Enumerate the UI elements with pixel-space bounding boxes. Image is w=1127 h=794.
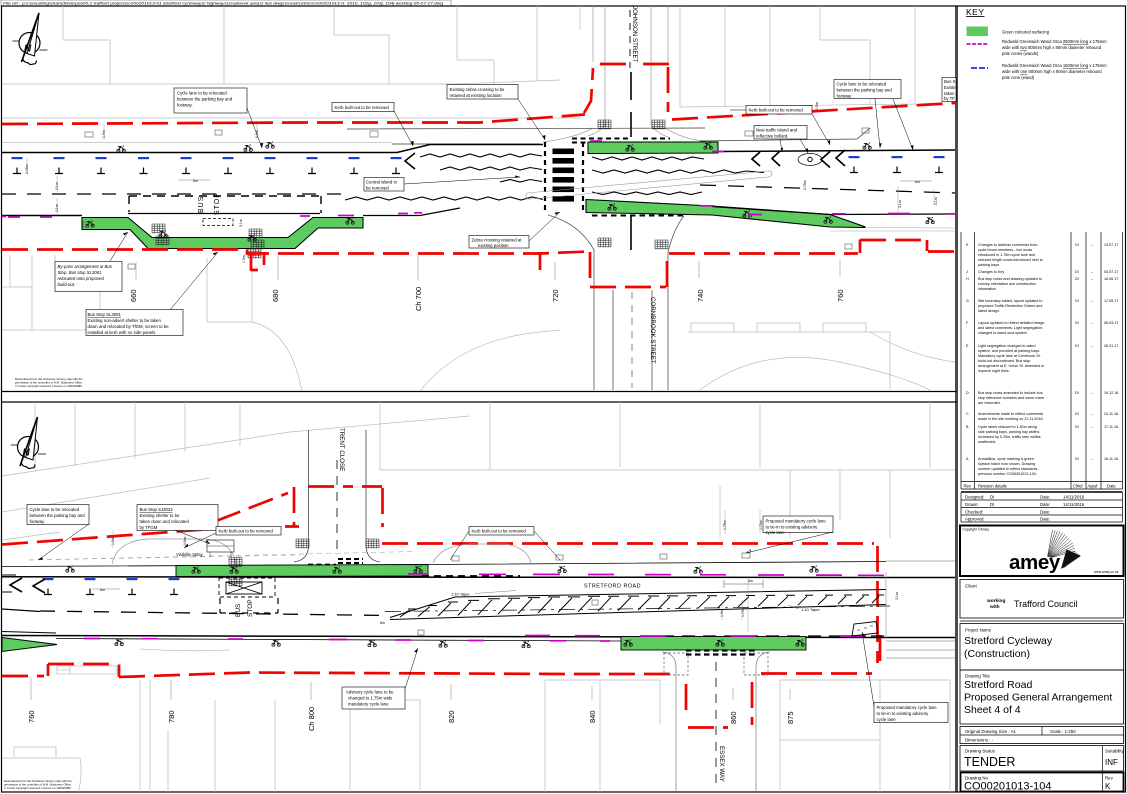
- svg-text:DI: DI: [1075, 457, 1079, 461]
- svg-text:16.11.16: 16.11.16: [1104, 457, 1118, 461]
- svg-text:DI: DI: [1075, 412, 1079, 416]
- svg-text:Stretford Road: Stretford Road: [964, 679, 1032, 691]
- svg-text:surface hatch now shown. Drawi: surface hatch now shown. Drawing: [978, 462, 1035, 466]
- svg-text:previous number CO00201013-104: previous number CO00201013-104.: [978, 472, 1037, 476]
- svg-text:wide with one 800mm high x 80m: wide with one 800mm high x 80mm diameter…: [1002, 69, 1102, 74]
- svg-text:Chkd: Chkd: [1073, 484, 1083, 489]
- svg-text:Proposed General Arrangement: Proposed General Arrangement: [964, 692, 1112, 704]
- svg-text:Approved:: Approved:: [965, 517, 985, 522]
- svg-text:DI: DI: [1075, 243, 1079, 247]
- svg-text:Ch 800: Ch 800: [307, 707, 316, 731]
- svg-text:Bus Stop SL3051: Bus Stop SL3051: [88, 312, 122, 317]
- svg-text:information: information: [978, 287, 996, 291]
- svg-text:unaffected.: unaffected.: [978, 440, 996, 444]
- svg-text:Existing zebra crossing to be: Existing zebra crossing to be: [450, 87, 506, 92]
- svg-text:3.1m: 3.1m: [934, 197, 938, 205]
- svg-text:Date:: Date:: [1040, 517, 1050, 522]
- svg-text:are reworded.: are reworded.: [978, 401, 1001, 405]
- svg-text:Checked:: Checked:: [965, 510, 983, 515]
- svg-text:Scale : 1:250: Scale : 1:250: [1050, 729, 1076, 734]
- svg-text:DI: DI: [1075, 391, 1079, 395]
- svg-text:STRETFORD ROAD: STRETFORD ROAD: [584, 584, 641, 590]
- svg-text:Bus stop notes and drawing upd: Bus stop notes and drawing updated to: [978, 277, 1042, 281]
- svg-text:14/11/2016: 14/11/2016: [1063, 502, 1085, 507]
- svg-text:INF: INF: [1105, 758, 1118, 767]
- svg-text:Redweld Greenwich Wand Orca 25: Redweld Greenwich Wand Orca 2500mm long …: [1002, 39, 1107, 44]
- svg-text:to tie-in to existing advisory: to tie-in to existing advisory: [766, 525, 819, 530]
- svg-text:860: 860: [729, 711, 738, 724]
- svg-text:retained at existing location: retained at existing location: [450, 93, 503, 98]
- svg-text:820: 820: [447, 710, 456, 723]
- svg-text:Sheet 4 of 4: Sheet 4 of 4: [964, 704, 1021, 716]
- svg-text:16.06.17: 16.06.17: [1104, 277, 1118, 281]
- svg-text:DI: DI: [1075, 277, 1079, 281]
- svg-text:3.1m: 3.1m: [239, 219, 243, 227]
- svg-text:Cycle lane to be relocated: Cycle lane to be relocated: [837, 82, 887, 87]
- svg-text:down and relocated by TfGM, sc: down and relocated by TfGM, screen to be: [88, 324, 170, 329]
- svg-text:19.12.16: 19.12.16: [1104, 391, 1118, 395]
- svg-text:with: with: [989, 604, 1000, 610]
- svg-text:17.05.17: 17.05.17: [1104, 299, 1118, 303]
- svg-text:By-pass arrangement at Bus: By-pass arrangement at Bus: [58, 264, 113, 269]
- svg-text:convey orientation and constru: convey orientation and construction: [978, 282, 1036, 286]
- svg-text:Kerb built-out to be removed: Kerb built-out to be removed: [219, 529, 274, 534]
- svg-text:Rev: Rev: [964, 484, 972, 489]
- svg-text:720: 720: [551, 289, 560, 302]
- svg-text:C: C: [966, 412, 969, 416]
- svg-text:6m: 6m: [380, 621, 385, 625]
- svg-text:Original Drawing Size : A1: Original Drawing Size : A1: [965, 729, 1017, 734]
- svg-text:13.07.17: 13.07.17: [1104, 243, 1118, 247]
- svg-text:Dimensions : -: Dimensions : -: [965, 738, 994, 743]
- svg-text:Amendments made to reflect com: Amendments made to reflect comments: [978, 412, 1043, 416]
- svg-text:parking bays: parking bays: [978, 263, 999, 267]
- svg-text:Stop. Bus stop SL3061: Stop. Bus stop SL3061: [58, 270, 103, 275]
- svg-text:Drawing Status: Drawing Status: [965, 749, 996, 754]
- svg-text:be removed: be removed: [366, 186, 389, 191]
- svg-text:Date:: Date:: [1040, 502, 1050, 507]
- svg-text:www.amey.co.uk: www.amey.co.uk: [1094, 570, 1119, 574]
- svg-text:number updated to reflect stan: number updated to reflect standards -: [978, 467, 1040, 471]
- svg-text:pole cone (wand): pole cone (wand): [1002, 75, 1035, 80]
- svg-text:system, and provided at parkin: system, and provided at parking bays.: [978, 349, 1040, 353]
- svg-text:Existin: Existin: [944, 85, 957, 90]
- svg-text:to tie-in to existing advisory: to tie-in to existing advisory: [877, 711, 930, 716]
- svg-text:660: 660: [129, 289, 138, 302]
- svg-text:between the parking bay and: between the parking bay and: [837, 88, 893, 93]
- svg-text:improve sight lines.: improve sight lines.: [978, 369, 1010, 373]
- svg-text:pole cones (wands): pole cones (wands): [1002, 51, 1039, 56]
- svg-text:between the parking bay and: between the parking bay and: [30, 513, 86, 518]
- svg-text:installed at kerb with no side: installed at kerb with no side panels: [88, 330, 156, 335]
- svg-text:1.75m: 1.75m: [741, 607, 745, 617]
- svg-text:Kerb built-out to be removed: Kerb built-out to be removed: [472, 529, 527, 534]
- svg-text:760: 760: [27, 710, 36, 723]
- svg-text:Light segregation changed to w: Light segregation changed to wand: [978, 344, 1035, 348]
- svg-text:Advisory cycle lane to be: Advisory cycle lane to be: [346, 690, 394, 695]
- svg-text:Zebra crossing retained at: Zebra crossing retained at: [472, 238, 523, 243]
- svg-text:side parking bays, parking bay: side parking bays, parking bay widths: [978, 430, 1039, 434]
- svg-text:KEY: KEY: [966, 7, 985, 17]
- svg-text:Date:: Date:: [1040, 510, 1050, 515]
- svg-text:STOP: STOP: [214, 192, 221, 215]
- svg-text:Kerb built-out to be removed: Kerb built-out to be removed: [749, 108, 804, 113]
- svg-text:1.5m: 1.5m: [815, 102, 819, 110]
- svg-text:BUS: BUS: [235, 603, 242, 617]
- svg-text:introduced in 1.75m cycle lane: introduced in 1.75m cycle lane and: [978, 253, 1035, 257]
- svg-text:latest design.: latest design.: [978, 309, 1000, 313]
- svg-text:6m: 6m: [915, 180, 920, 184]
- svg-text:Suitability: Suitability: [1105, 749, 1125, 754]
- svg-text:6m: 6m: [193, 179, 198, 183]
- svg-text:STOP: STOP: [247, 599, 254, 617]
- svg-text:Bus Stop SJ3032: Bus Stop SJ3032: [140, 507, 174, 512]
- svg-text:Kerb built-out to be removed: Kerb built-out to be removed: [335, 105, 390, 110]
- svg-text:mandatory cycle lane: mandatory cycle lane: [348, 702, 389, 707]
- svg-text:footway: footway: [837, 94, 853, 99]
- svg-text:cycle lane: cycle lane: [877, 717, 897, 722]
- svg-text:Green coloured surfacing: Green coloured surfacing: [1002, 30, 1050, 35]
- svg-text:TRENT CLOSE: TRENT CLOSE: [338, 428, 345, 471]
- svg-text:740: 740: [696, 289, 705, 302]
- svg-text:© Crown copyright reserved. Li: © Crown copyright reserved. Licence no 1…: [15, 384, 82, 388]
- svg-text:1.75m: 1.75m: [759, 520, 763, 530]
- svg-text:Proposed mandatory cycle lane: Proposed mandatory cycle lane: [766, 519, 827, 524]
- svg-text:760: 760: [836, 289, 845, 302]
- svg-text:Date:: Date:: [1040, 495, 1050, 500]
- svg-text:Bus S: Bus S: [944, 79, 956, 84]
- svg-text:03.07.17: 03.07.17: [1104, 270, 1118, 274]
- svg-text:K: K: [1105, 782, 1111, 791]
- svg-text:reflective bollard.: reflective bollard.: [756, 134, 788, 139]
- svg-text:Client: Client: [965, 584, 977, 589]
- svg-text:Mandatory cycle lane at Cornbr: Mandatory cycle lane at Cornbrook St.: [978, 354, 1041, 358]
- svg-text:680: 680: [271, 289, 280, 302]
- svg-text:and latest comments. Light seg: and latest comments. Light segregation: [978, 326, 1042, 330]
- svg-text:(Construction): (Construction): [964, 648, 1030, 660]
- svg-text:Drawing Title: Drawing Title: [965, 674, 990, 679]
- svg-text:Rev: Rev: [1105, 776, 1114, 781]
- svg-text:J: J: [966, 270, 968, 274]
- svg-text:cycle lane: cycle lane: [766, 530, 786, 535]
- svg-text:Drawn:: Drawn:: [965, 502, 979, 507]
- svg-text:H: H: [966, 277, 969, 281]
- svg-text:DI: DI: [990, 495, 994, 500]
- svg-text:1:10 Taper: 1:10 Taper: [801, 607, 820, 612]
- svg-text:New traffic island and: New traffic island and: [756, 128, 798, 133]
- svg-text:3.1m: 3.1m: [898, 200, 902, 208]
- svg-text:2.05m: 2.05m: [803, 180, 807, 190]
- svg-text:1:10 Taper: 1:10 Taper: [451, 592, 470, 597]
- svg-text:Ch 700: Ch 700: [414, 287, 423, 311]
- svg-text:wide with two 800mm high x 80m: wide with two 800mm high x 80mm diameter…: [1002, 45, 1102, 50]
- svg-text:Copyright ©Amey: Copyright ©Amey: [963, 528, 990, 532]
- svg-text:DI: DI: [1075, 425, 1079, 429]
- svg-text:ESSEX WAY: ESSEX WAY: [718, 746, 725, 782]
- svg-text:JOHNSON STREET: JOHNSON STREET: [631, 6, 638, 63]
- svg-text:Changes to address comments fr: Changes to address comments from: [978, 243, 1037, 247]
- svg-text:Changes to Key: Changes to Key: [978, 270, 1004, 274]
- svg-text:780: 780: [167, 710, 176, 723]
- svg-text:6m: 6m: [748, 579, 753, 583]
- svg-text:Cycle lane to be relocated: Cycle lane to be relocated: [30, 507, 80, 512]
- svg-text:build-out discontinued. Bus st: build-out discontinued. Bus stop: [978, 359, 1030, 363]
- svg-text:6m: 6m: [100, 588, 105, 592]
- svg-text:between the parking bay and: between the parking bay and: [177, 97, 233, 102]
- svg-text:Revision details: Revision details: [978, 484, 1007, 489]
- svg-text:Armadillos, cycle marking & gr: Armadillos, cycle marking & green: [978, 457, 1034, 461]
- svg-text:footway.: footway.: [177, 103, 193, 108]
- svg-text:Existing non-advert shelter to: Existing non-advert shelter to be taken: [88, 318, 162, 323]
- svg-text:Appd: Appd: [1088, 484, 1098, 489]
- svg-text:DI: DI: [1075, 270, 1079, 274]
- svg-text:Proposed mandatory cycle lane: Proposed mandatory cycle lane: [877, 705, 938, 710]
- svg-text:DI: DI: [990, 502, 994, 507]
- svg-text:Designed:: Designed:: [965, 495, 984, 500]
- svg-text:Cycle lane to be relocated: Cycle lane to be relocated: [177, 91, 227, 96]
- svg-text:stop reference numbers and som: stop reference numbers and some notes: [978, 396, 1044, 400]
- svg-text:BUS: BUS: [198, 196, 205, 213]
- svg-text:taken down and relocated: taken down and relocated: [140, 519, 190, 524]
- svg-text:08.03.17: 08.03.17: [1104, 321, 1118, 325]
- svg-text:changed to 1.75m wide: changed to 1.75m wide: [348, 696, 393, 701]
- svg-text:840: 840: [588, 710, 597, 723]
- svg-text:Existing shelter to be: Existing shelter to be: [140, 513, 180, 518]
- svg-text:1.5m: 1.5m: [242, 255, 246, 263]
- svg-text:changed to wand orca system: changed to wand orca system: [978, 331, 1027, 335]
- svg-text:Redweld Greenwich Wand Orca 15: Redweld Greenwich Wand Orca 1500mm long …: [1002, 63, 1107, 68]
- svg-text:26.01.17: 26.01.17: [1104, 344, 1118, 348]
- svg-text:Bus stop notes amended to incl: Bus stop notes amended to include bus: [978, 391, 1043, 395]
- svg-text:875: 875: [786, 711, 795, 724]
- svg-text:DI: DI: [1075, 344, 1079, 348]
- svg-text:by TFGM: by TFGM: [140, 525, 158, 530]
- svg-text:File ref - p:\consulting\share: File ref - p:\consulting\shared\liverpoo…: [3, 1, 444, 6]
- svg-text:working: working: [986, 598, 1005, 604]
- svg-text:3.1m: 3.1m: [895, 592, 899, 600]
- svg-text:existing position: existing position: [478, 243, 509, 248]
- svg-text:Trafford Council: Trafford Council: [1014, 599, 1078, 609]
- svg-text:by TF: by TF: [944, 96, 955, 101]
- svg-text:Date: Date: [1107, 484, 1116, 489]
- svg-text:14/11/2016: 14/11/2016: [1063, 495, 1085, 500]
- svg-text:© Crown copyright reserved. Li: © Crown copyright reserved. Licence no 1…: [4, 786, 71, 790]
- svg-text:TENDER: TENDER: [964, 755, 1015, 769]
- svg-text:Project Name: Project Name: [965, 628, 992, 633]
- svg-text:Site boundary added, layout up: Site boundary added, layout updated to: [978, 299, 1042, 303]
- svg-text:proposed Traffic Restriction O: proposed Traffic Restriction Orders and: [978, 304, 1042, 308]
- svg-text:Central island to: Central island to: [366, 180, 398, 185]
- svg-text:24.11.16: 24.11.16: [1104, 412, 1118, 416]
- svg-text:Cycle lanes reduced to 1.50m a: Cycle lanes reduced to 1.50m along: [978, 425, 1037, 429]
- svg-text:Layout updated to reflect deta: Layout updated to reflect detailed desig…: [978, 321, 1044, 325]
- svg-text:17.11.16: 17.11.16: [1104, 425, 1118, 429]
- svg-text:DI: DI: [1075, 321, 1079, 325]
- svg-text:build-out.: build-out.: [58, 282, 76, 287]
- svg-text:Stretford Cycleway: Stretford Cycleway: [964, 635, 1053, 647]
- svg-text:made in the site meeting on 21: made in the site meeting on 21.11.2016.: [978, 417, 1044, 421]
- svg-text:CO00201013-104: CO00201013-104: [964, 781, 1051, 793]
- svg-text:CORNBROOK STREET: CORNBROOK STREET: [649, 297, 656, 364]
- svg-text:DI: DI: [1075, 299, 1079, 303]
- svg-text:cycle forum members - incl orc: cycle forum members - incl orcas: [978, 248, 1032, 252]
- svg-text:arrangement at E. Union St. am: arrangement at E. Union St. amended to: [978, 364, 1044, 368]
- svg-text:Visibility Splay: Visibility Splay: [176, 552, 204, 557]
- svg-text:footway: footway: [30, 519, 46, 524]
- svg-text:increased by 0.25m, traffic la: increased by 0.25m, traffic lane widths: [978, 435, 1041, 439]
- svg-text:reduced length orcas introduce: reduced length orcas introduced next to: [978, 258, 1043, 262]
- svg-text:D: D: [966, 391, 969, 395]
- svg-text:relocated onto proposed: relocated onto proposed: [58, 276, 105, 281]
- svg-text:G: G: [966, 299, 969, 303]
